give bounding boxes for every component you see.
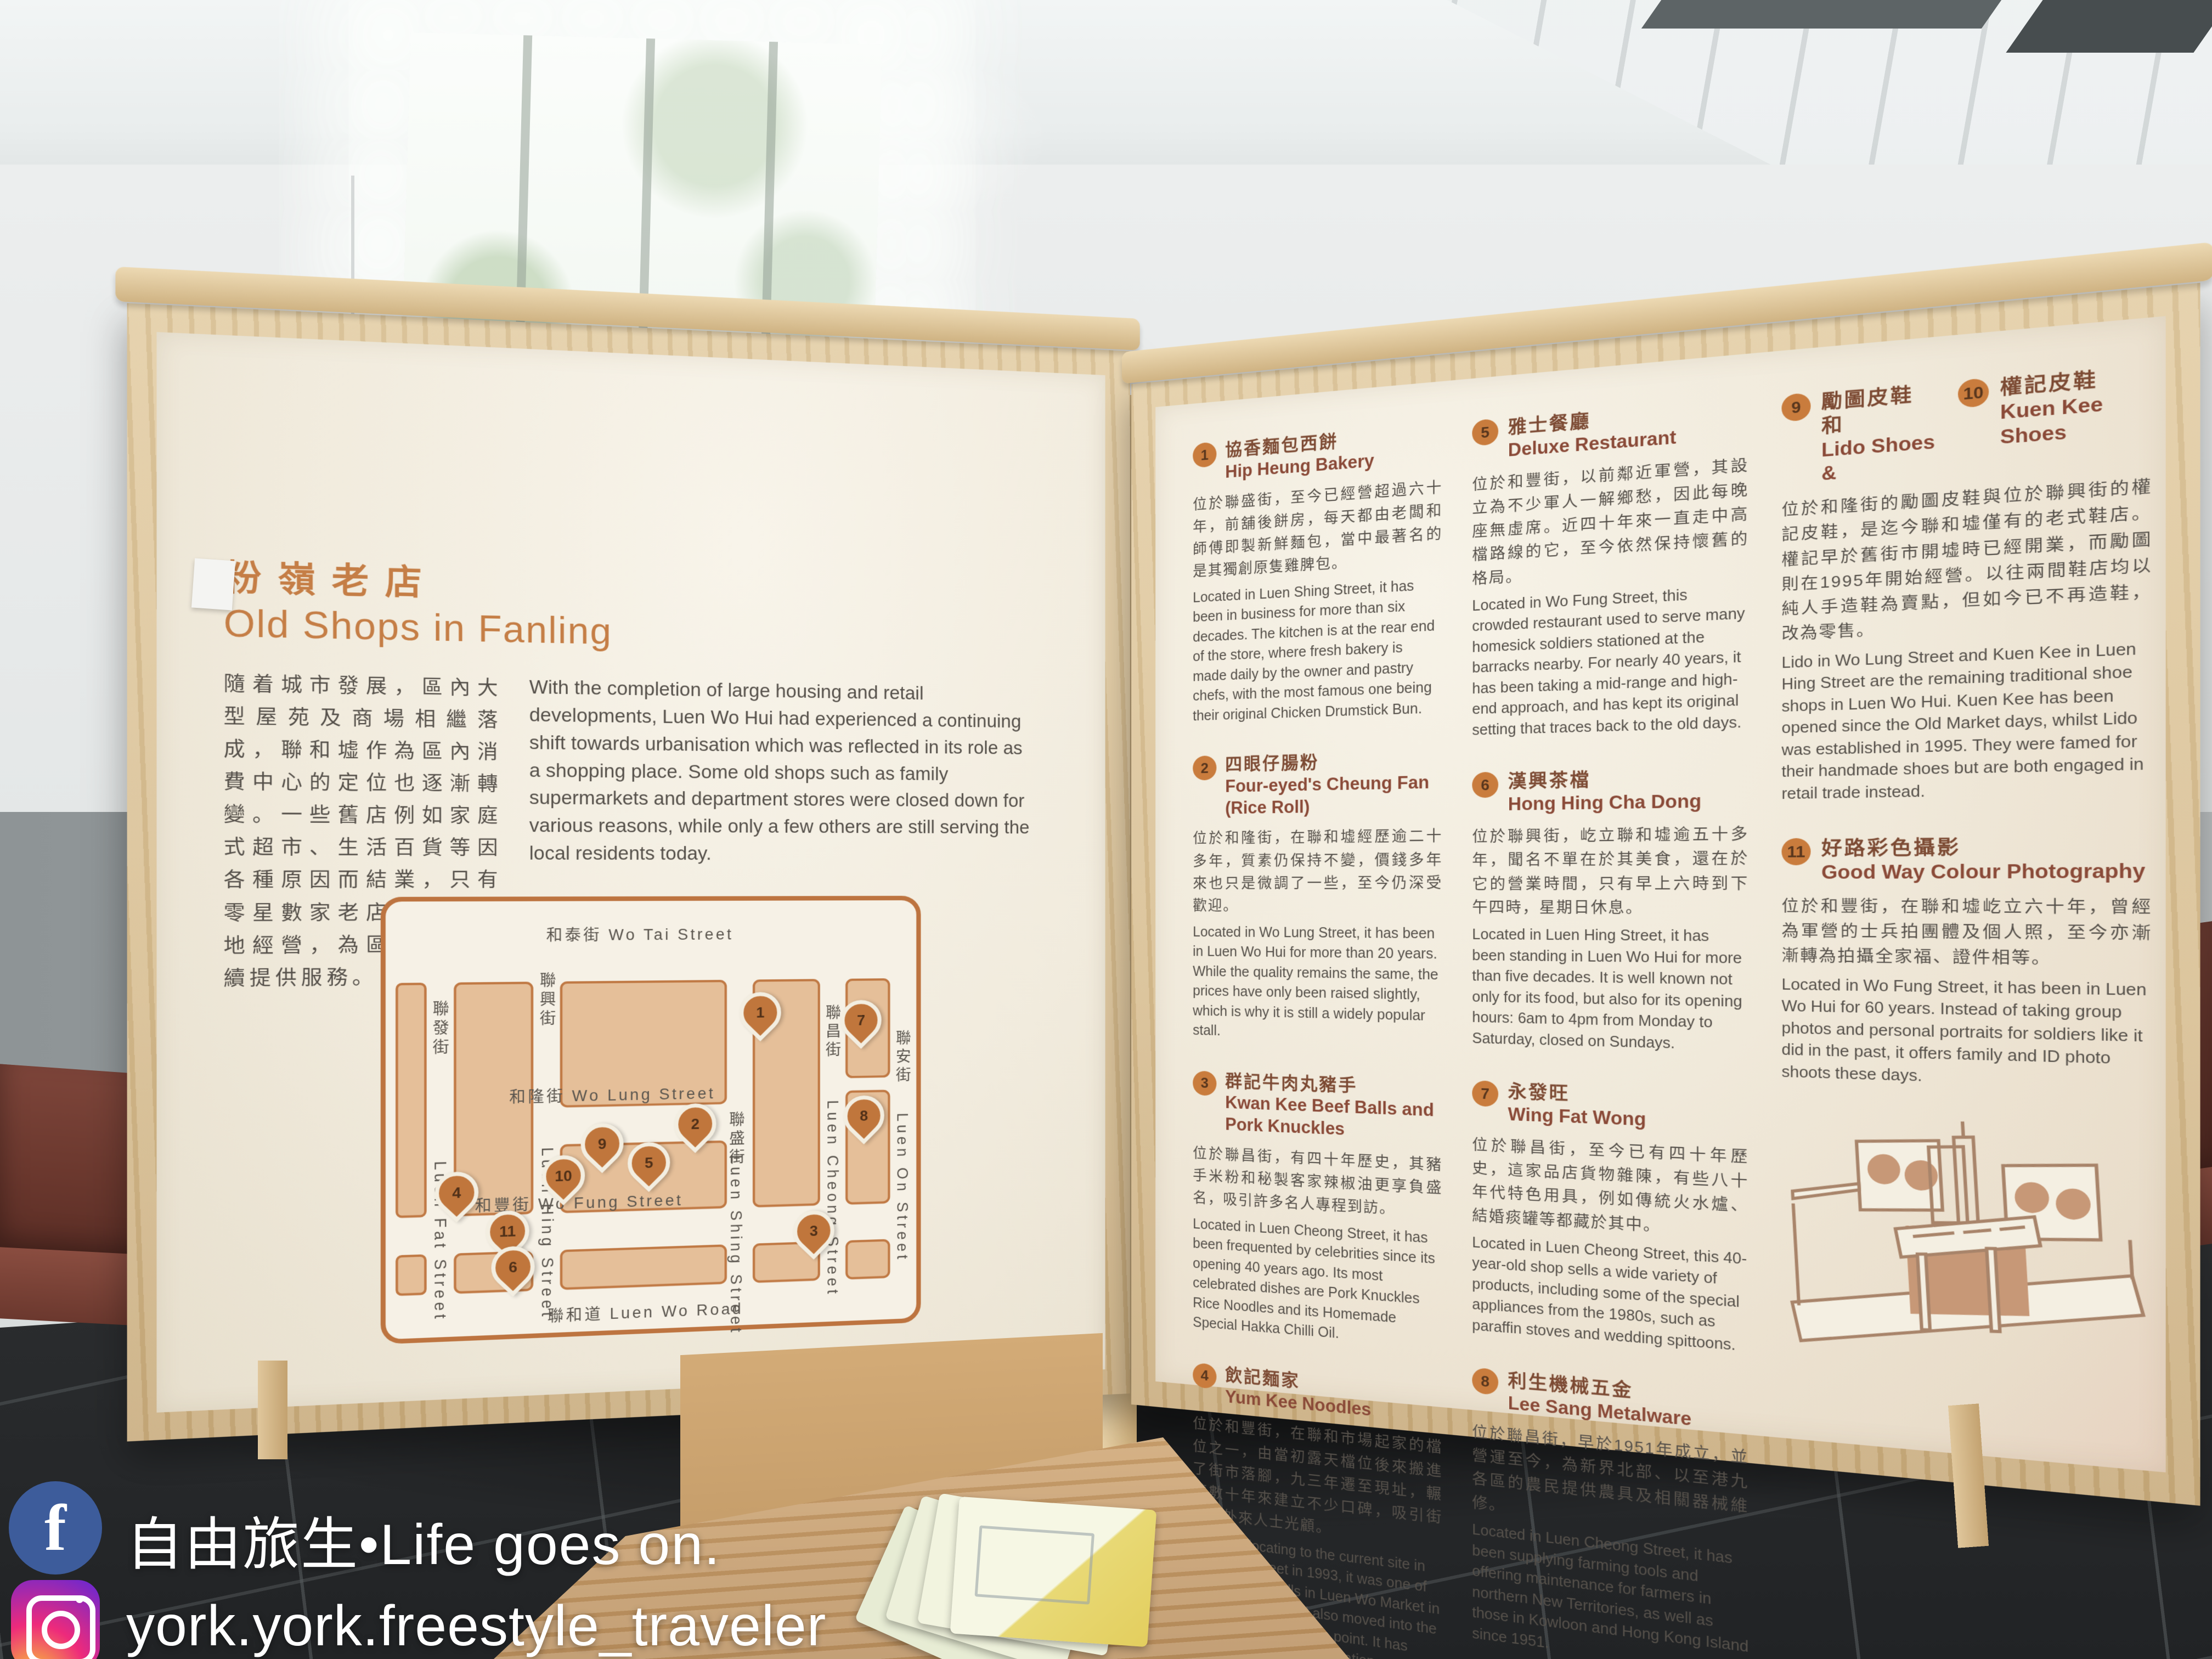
shop-desc-zh: 位於聯昌街，至今已有四十年歷史，這家品店貨物雜陳，有些八十年代特色用具，例如傳統… [1472, 1133, 1748, 1243]
panel-right-board: 1 協香麵包西餅 Hip Heung Bakery 位於聯盛街，至今已經營超過六… [1155, 316, 2166, 1472]
easel-leg [258, 1361, 287, 1459]
street-label-wo-tai: 和泰街 Wo Tai Street [546, 921, 734, 945]
shop-number-badge: 9 [1781, 393, 1810, 422]
shop-entry-wing-fat-wong: 7 永發旺 Wing Fat Wong 位於聯昌街，至今已有四十年歷史，這家品店… [1472, 1079, 1748, 1357]
shops-column-2: 5 雅士餐廳 Deluxe Restaurant 位於和豐街，以前鄰近軍營，其設… [1472, 397, 1748, 1659]
shop-number-badge: 7 [1472, 1080, 1498, 1107]
shop-desc-zh: 位於聯昌街，有四十年歷史，其豬手米粉和秘製客家辣椒油更享負盛名，吸引許多名人專程… [1193, 1142, 1442, 1223]
shops-column-3: 9 勵圖皮鞋 和 Lido Shoes & 10 權記皮鞋 Kuen Kee S… [1781, 363, 2152, 1367]
shop-desc-en: Located in Wo Fung Street, this crowded … [1472, 582, 1748, 741]
street-label-luen-cheong-en: Luen Cheong Street [823, 1099, 841, 1297]
shop-entry-hong-hing-cha-dong: 6 漢興茶檔 Hong Hing Cha Dong 位於聯興街，屹立聯和墟逾五十… [1472, 765, 1748, 1056]
shop-desc-en: Lido in Wo Lung Street and Kuen Kee in L… [1781, 637, 2152, 805]
panel-side-tag [191, 558, 235, 611]
shop-desc-zh: 位於和隆街，在聯和墟經歷逾二十多年，質素仍保持不變，價錢多年來也只是微調了一些，… [1193, 824, 1442, 918]
shop-name-en: Four-eyed's Cheung Fan (Rice Roll) [1225, 771, 1442, 819]
shop-number-badge: 5 [1472, 419, 1498, 447]
shop-entry-hip-heung-bakery: 1 協香麵包西餅 Hip Heung Bakery 位於聯盛街，至今已經營超過六… [1193, 422, 1442, 726]
display-panel-right: 1 協香麵包西餅 Hip Heung Bakery 位於聯盛街，至今已經營超過六… [1131, 283, 2200, 1505]
shop-number-badge: 10 [1958, 378, 1989, 408]
street-label-luen-hing-zh: 聯興街 [535, 972, 558, 1030]
page-title-zh: 粉嶺老店 [224, 549, 438, 606]
panel-left-board: 粉嶺老店 Old Shops in Fanling 隨着城市發展，區內大型屋苑及… [157, 332, 1105, 1413]
shop-name-en: Hong Hing Cha Dong [1508, 790, 1702, 816]
shop-entry-good-way-colour-photography: 11 好路彩色攝影 Good Way Colour Photography 位於… [1781, 834, 2152, 1095]
ceiling-vent [2006, 0, 2212, 53]
shop-desc-en: Located in Luen Hing Street, it has been… [1472, 924, 1748, 1056]
shop-name-zh: 好路彩色攝影 [1821, 834, 2145, 861]
market-building-illustration [1775, 1120, 2159, 1358]
instagram-icon [11, 1580, 100, 1659]
shop-desc-en: Located in Luen Shing Street, it has bee… [1193, 574, 1442, 726]
shop-desc-en: Located in Luen Cheong Street, it has be… [1193, 1214, 1442, 1352]
street-label-luen-shing-en: Luen Shing Street [727, 1154, 745, 1336]
shop-number-badge: 6 [1472, 772, 1498, 798]
shop-name-zh: 漢興茶檔 [1508, 766, 1702, 793]
street-label-luen-on-en: Luen On Street [894, 1113, 911, 1263]
shop-desc-en: Located in Wo Lung Street, it has been i… [1193, 922, 1442, 1047]
shop-number-badge: 3 [1193, 1070, 1216, 1096]
shop-desc-en: Located in Luen Cheong Street, this 40-y… [1472, 1233, 1748, 1358]
shop-name-en: Good Way Colour Photography [1821, 859, 2145, 885]
ceiling-vent [1641, 0, 2001, 29]
shop-entry-four-eyeds-cheung-fan: 2 四眼仔腸粉 Four-eyed's Cheung Fan (Rice Rol… [1193, 749, 1442, 1047]
street-map: 和泰街 Wo Tai Street 和隆街 Wo Lung Street 和豐街… [377, 893, 924, 1348]
shop-desc-zh: 位於和豐街，以前鄰近軍營，其設立為不少軍人一解鄉愁，因此每晚座無虛席。近四十年來… [1472, 453, 1748, 590]
shop-desc-zh: 位於和隆街的勵圖皮鞋與位於聯興街的權記皮鞋，是迄今聯和墟僅有的老式鞋店。權記早於… [1781, 473, 2152, 646]
shop-desc-zh: 位於聯盛街，至今已經營超過六十年，前舖後餅房，每天都由老闆和師傅即製新鮮麵包，當… [1193, 475, 1442, 583]
shop-desc-en: Located in Wo Fung Street, it has been i… [1781, 974, 2152, 1094]
shop-name-zh: 勵圖皮鞋 和 [1821, 381, 1940, 438]
shop-name-en: Lido Shoes & [1821, 430, 1940, 487]
facebook-handle: 自由旅生•Life goes on. [126, 1498, 721, 1581]
shop-entry-lido-and-kuen-kee-shoes: 9 勵圖皮鞋 和 Lido Shoes & 10 權記皮鞋 Kuen Kee S… [1781, 363, 2152, 805]
shop-desc-zh: 位於聯興街，屹立聯和墟逾五十多年，聞名不單在於其美食，還在於它的營業時間，只有早… [1472, 821, 1748, 920]
display-panel-left: 粉嶺老店 Old Shops in Fanling 隨着城市發展，區內大型屋苑及… [127, 303, 1130, 1441]
shop-number-badge: 11 [1781, 838, 1810, 866]
shop-number-badge: 2 [1193, 755, 1216, 781]
shop-name-en: Kwan Kee Beef Balls and Pork Knuckles [1225, 1092, 1442, 1145]
shop-entry-deluxe-restaurant: 5 雅士餐廳 Deluxe Restaurant 位於和豐街，以前鄰近軍營，其設… [1472, 397, 1748, 741]
page-title-en: Old Shops in Fanling [224, 601, 613, 653]
shop-number-badge: 1 [1193, 442, 1216, 468]
exhibition-room-photo: 粉嶺老店 Old Shops in Fanling 隨着城市發展，區內大型屋苑及… [0, 0, 2212, 1659]
shop-entry-lee-sang-metalware: 8 利生機械五金 Lee Sang Metalware 位於聯昌街，早於1951… [1472, 1367, 1748, 1659]
shops-column-1: 1 協香麵包西餅 Hip Heung Bakery 位於聯盛街，至今已經營超過六… [1193, 422, 1442, 1659]
shop-entry-kwan-kee: 3 群記牛肉丸豬手 Kwan Kee Beef Balls and Pork K… [1193, 1069, 1442, 1352]
shop-name-en: Wing Fat Wong [1508, 1103, 1646, 1132]
leaflet [950, 1497, 1157, 1647]
leaflet-stack [856, 1503, 1163, 1659]
shop-desc-zh: 位於和豐街，在聯和墟屹立六十年，曾經為軍營的士兵拍團體及個人照，至今亦漸漸轉為拍… [1781, 894, 2152, 973]
shop-number-badge: 8 [1472, 1368, 1498, 1396]
street-label-wo-lung: 和隆街 Wo Lung Street [509, 1080, 715, 1107]
street-label-luen-fat-zh: 聯發街 [428, 1000, 452, 1058]
street-map-graphic [377, 893, 924, 1348]
street-label-luen-cheong-zh: 聯昌街 [821, 1005, 844, 1060]
instagram-handle: york.york.freestyle_traveler [126, 1594, 826, 1659]
intro-paragraph-en: With the completion of large housing and… [529, 673, 1035, 867]
street-label-luen-on-zh: 聯安街 [891, 1030, 913, 1086]
facebook-icon: f [9, 1481, 102, 1575]
shop-desc-en: Located in Luen Cheong Street, it has be… [1472, 1520, 1748, 1659]
shop-number-badge: 4 [1193, 1362, 1216, 1389]
